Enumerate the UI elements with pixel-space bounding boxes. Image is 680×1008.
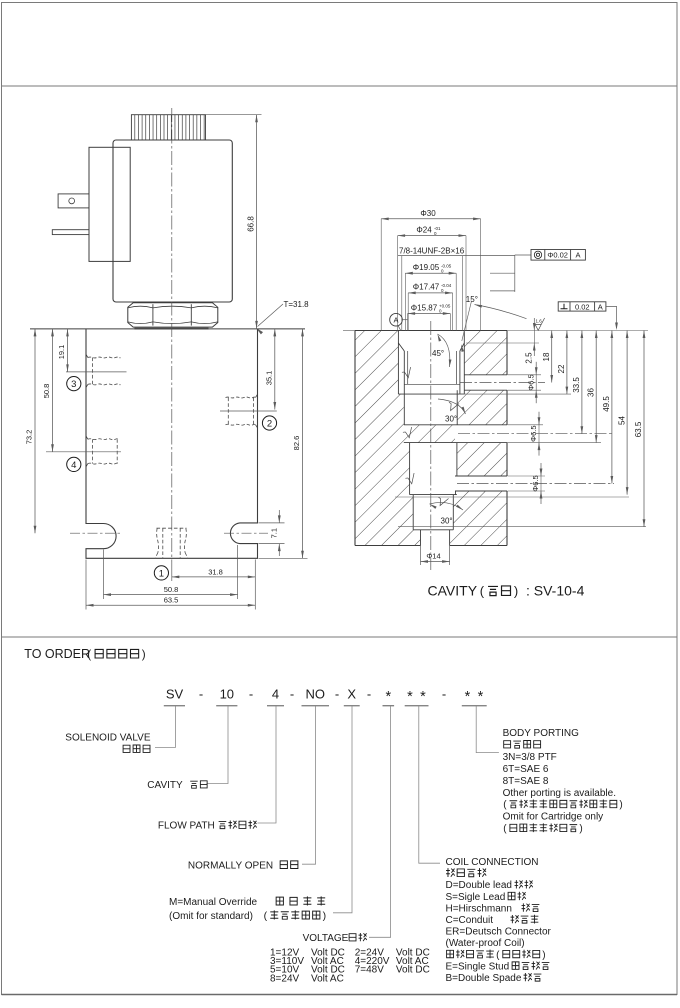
svg-text:-: - bbox=[199, 687, 203, 702]
svg-text:-: - bbox=[367, 687, 371, 702]
svg-text:D=Double lead: D=Double lead bbox=[446, 880, 512, 891]
svg-text:63.5: 63.5 bbox=[634, 421, 643, 437]
svg-text:30°: 30° bbox=[445, 415, 457, 424]
svg-text:A: A bbox=[393, 316, 398, 325]
svg-text:Φ6.5: Φ6.5 bbox=[529, 425, 538, 441]
svg-text:M=Manual Override: M=Manual Override bbox=[169, 897, 258, 908]
svg-text:3N=3/8 PTF: 3N=3/8 PTF bbox=[503, 752, 557, 763]
svg-text:Volt DC: Volt DC bbox=[396, 965, 430, 976]
svg-text:8T=SAE 8: 8T=SAE 8 bbox=[503, 776, 549, 787]
svg-text:18: 18 bbox=[542, 352, 551, 361]
svg-text:Φ6.5: Φ6.5 bbox=[526, 374, 535, 390]
svg-text:22: 22 bbox=[557, 364, 566, 373]
svg-text:Φ19.05: Φ19.05 bbox=[413, 263, 440, 272]
svg-text:SOLENOID VALVE: SOLENOID VALVE bbox=[65, 733, 151, 744]
svg-text:73.2: 73.2 bbox=[25, 430, 34, 445]
svg-text:A: A bbox=[575, 251, 580, 260]
svg-text:B=Double Spade: B=Double Spade bbox=[446, 973, 522, 984]
svg-text:(: ( bbox=[264, 910, 268, 922]
svg-text:15°: 15° bbox=[466, 295, 478, 304]
svg-text:Φ17.47: Φ17.47 bbox=[413, 283, 440, 292]
svg-text:33.5: 33.5 bbox=[572, 377, 581, 393]
svg-text:E=Single Stud: E=Single Stud bbox=[446, 961, 510, 972]
svg-text:FLOW PATH: FLOW PATH bbox=[158, 821, 215, 832]
svg-text:-: - bbox=[335, 687, 339, 702]
svg-text:-: - bbox=[290, 687, 294, 702]
svg-text:Φ14: Φ14 bbox=[426, 552, 440, 561]
svg-text:BODY PORTING: BODY PORTING bbox=[503, 728, 580, 739]
svg-text:7=48V: 7=48V bbox=[355, 965, 385, 976]
svg-text:): ) bbox=[542, 950, 545, 961]
svg-text:4: 4 bbox=[71, 460, 76, 471]
svg-text:X: X bbox=[347, 687, 356, 702]
svg-text:-: - bbox=[249, 687, 253, 702]
svg-text:(Omit for standard): (Omit for standard) bbox=[169, 911, 253, 922]
svg-text:(Water-proof Coil): (Water-proof Coil) bbox=[446, 938, 525, 949]
svg-text:CAVITY: CAVITY bbox=[147, 780, 183, 791]
svg-text:0.02: 0.02 bbox=[575, 302, 590, 311]
svg-text:(: ( bbox=[87, 647, 91, 661]
svg-text:6T=SAE 6: 6T=SAE 6 bbox=[503, 764, 549, 775]
svg-text:: SV-10-4: : SV-10-4 bbox=[526, 583, 585, 599]
svg-text:*: * bbox=[385, 689, 391, 705]
svg-text:63.5: 63.5 bbox=[164, 596, 179, 605]
svg-text:COIL CONNECTION: COIL CONNECTION bbox=[446, 857, 539, 868]
svg-text:): ) bbox=[323, 910, 327, 922]
svg-text:Φ30: Φ30 bbox=[420, 209, 436, 218]
svg-text:*: * bbox=[420, 689, 426, 705]
svg-text:10: 10 bbox=[220, 687, 234, 702]
svg-text:Φ0.02: Φ0.02 bbox=[547, 251, 568, 260]
svg-text:): ) bbox=[579, 824, 582, 835]
svg-text:Other porting is available.: Other porting is available. bbox=[503, 788, 616, 799]
svg-text:54: 54 bbox=[617, 416, 626, 425]
svg-text:A: A bbox=[598, 302, 603, 311]
svg-text:35.1: 35.1 bbox=[264, 371, 273, 386]
svg-text:19.1: 19.1 bbox=[57, 345, 66, 360]
svg-text:NORMALLY OPEN: NORMALLY OPEN bbox=[188, 861, 273, 872]
svg-text:): ) bbox=[514, 584, 518, 599]
svg-text:): ) bbox=[619, 800, 622, 811]
svg-text:2: 2 bbox=[267, 418, 272, 429]
svg-text:66.8: 66.8 bbox=[247, 216, 256, 232]
svg-text:50.8: 50.8 bbox=[164, 585, 179, 594]
svg-text:31.8: 31.8 bbox=[208, 567, 223, 576]
svg-text:*: * bbox=[478, 689, 484, 705]
svg-text:H=Hirschmann: H=Hirschmann bbox=[446, 903, 512, 914]
svg-text:8=24V: 8=24V bbox=[270, 973, 300, 984]
svg-text:7/8-14UNF-2B×16: 7/8-14UNF-2B×16 bbox=[399, 246, 465, 255]
svg-text:82.6: 82.6 bbox=[292, 436, 301, 451]
svg-text:SV: SV bbox=[166, 687, 184, 702]
svg-text:4: 4 bbox=[272, 687, 279, 702]
svg-text:36: 36 bbox=[586, 388, 595, 397]
svg-text:3: 3 bbox=[71, 379, 76, 390]
svg-text:ER=Deutsch Connector: ER=Deutsch Connector bbox=[446, 927, 552, 938]
svg-text:1.6: 1.6 bbox=[536, 319, 543, 324]
svg-text:-: - bbox=[442, 687, 446, 702]
svg-text:Φ24: Φ24 bbox=[416, 225, 432, 234]
svg-text:S=Sigle Lead: S=Sigle Lead bbox=[446, 892, 506, 903]
svg-text:2.5: 2.5 bbox=[525, 352, 534, 364]
svg-text:30°: 30° bbox=[441, 517, 453, 526]
svg-text:7.1: 7.1 bbox=[270, 528, 279, 538]
svg-text:Φ6.5: Φ6.5 bbox=[531, 475, 540, 491]
svg-text:C=Conduit: C=Conduit bbox=[446, 915, 494, 926]
svg-text:VOLTAGE: VOLTAGE bbox=[303, 933, 349, 944]
svg-text:*: * bbox=[465, 689, 471, 705]
svg-text:NO: NO bbox=[305, 687, 325, 702]
svg-text:Omit for Cartridge only: Omit for Cartridge only bbox=[503, 812, 604, 823]
svg-text:50.8: 50.8 bbox=[42, 384, 51, 399]
svg-text:*: * bbox=[407, 689, 413, 705]
svg-text:Volt AC: Volt AC bbox=[311, 973, 344, 984]
svg-text:49.5: 49.5 bbox=[602, 396, 611, 412]
svg-text:(: ( bbox=[480, 584, 485, 599]
svg-text:CAVITY: CAVITY bbox=[428, 583, 478, 599]
svg-text:1: 1 bbox=[159, 568, 164, 579]
svg-text:TO ORDER: TO ORDER bbox=[24, 647, 90, 661]
svg-text:T=31.8: T=31.8 bbox=[284, 300, 310, 309]
svg-text:Φ15.87: Φ15.87 bbox=[411, 303, 438, 312]
svg-text:45°: 45° bbox=[432, 349, 444, 358]
svg-text:): ) bbox=[142, 647, 146, 661]
